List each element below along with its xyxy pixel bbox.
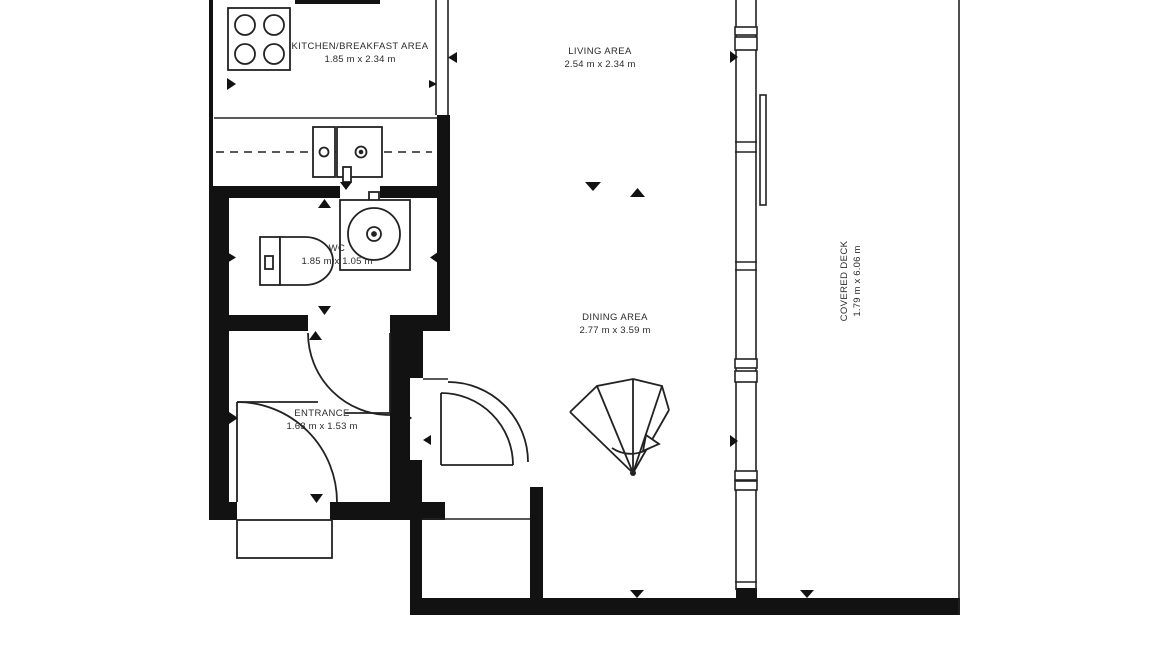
wall-wc-entrance-right	[390, 315, 450, 331]
wc-dimensions: 1.85 m x 1.05 m	[277, 255, 397, 268]
wall-entrance-bottom-left	[209, 502, 237, 520]
wc-fixtures	[260, 192, 410, 285]
stove-burner-icon	[235, 44, 255, 64]
vestibule-door-swing-arc-outer	[448, 382, 528, 462]
wall-wc-top-right	[380, 186, 450, 198]
floor-plan: KITCHEN/BREAKFAST AREA 1.85 m x 2.34 m L…	[0, 0, 1170, 648]
stair-tread-line	[597, 386, 633, 473]
living-area-name: LIVING AREA	[520, 45, 680, 58]
window-mullion	[735, 481, 757, 490]
wall-wc-entrance-left	[209, 315, 308, 331]
living-area-dimensions: 2.54 m x 2.34 m	[520, 58, 680, 71]
wall-porch-right	[530, 487, 543, 615]
marker-down-icon	[340, 182, 352, 190]
wall-bottom-main	[410, 598, 960, 615]
marker-up-icon	[318, 199, 331, 208]
kitchen-tap-icon	[343, 167, 351, 182]
dining-area-label: DINING AREA 2.77 m x 3.59 m	[535, 311, 695, 337]
stair-tread-line	[570, 412, 633, 473]
hall-door-swing-arc	[308, 333, 390, 415]
wc-name: WC	[277, 242, 397, 255]
sink-drain-dot	[360, 151, 363, 154]
stair-direction-arrowhead	[643, 435, 659, 451]
marker-down-icon	[800, 590, 814, 598]
window-mullion	[735, 37, 757, 50]
stove-burner-icon	[264, 15, 284, 35]
sink-drain-icon	[320, 148, 329, 157]
marker-up-icon	[309, 331, 322, 340]
doors	[237, 333, 528, 558]
stove-burner-icon	[235, 15, 255, 35]
covered-deck-label: COVERED DECK 1.79 m x 6.06 m	[838, 226, 864, 336]
window-mullion	[735, 471, 757, 480]
marker-right-icon	[227, 252, 236, 263]
marker-down-icon	[630, 590, 644, 598]
stair-center-post	[630, 470, 636, 476]
covered-deck-dimensions: 1.79 m x 6.06 m	[851, 226, 864, 336]
dining-area-name: DINING AREA	[535, 311, 695, 324]
basin-drain-dot	[372, 232, 376, 236]
marker-down-icon	[318, 306, 331, 315]
marker-left-icon	[423, 435, 431, 445]
window-mullion	[735, 371, 757, 382]
sliding-door-panel	[760, 95, 766, 205]
marker-down-icon	[585, 182, 601, 191]
living-area-label: LIVING AREA 2.54 m x 2.34 m	[520, 45, 680, 71]
wall-entrance-right	[390, 378, 410, 502]
kitchen-name: KITCHEN/BREAKFAST AREA	[280, 40, 440, 53]
kitchen-fixtures	[228, 8, 382, 182]
marker-left-icon	[430, 252, 438, 263]
wall-window-base-block	[736, 588, 757, 598]
kitchen-dimensions: 1.85 m x 2.34 m	[280, 53, 440, 66]
entrance-step	[237, 520, 332, 558]
window-wall	[735, 0, 766, 590]
marker-down-icon	[310, 494, 323, 503]
wall-wc-top-left	[209, 186, 340, 198]
wall-entrance-corner	[390, 331, 423, 378]
marker-up-icon	[630, 188, 645, 197]
wall-entrance-bottom-right	[330, 502, 445, 520]
wall-vestibule-left	[410, 460, 422, 615]
window-mullion	[735, 359, 757, 368]
entrance-name: ENTRANCE	[242, 407, 402, 420]
wall-left-thick	[209, 186, 229, 520]
entrance-dimensions: 1.63 m x 1.53 m	[242, 420, 402, 433]
marker-left-icon	[448, 52, 457, 63]
covered-deck-name: COVERED DECK	[838, 226, 851, 336]
window-mullion	[735, 27, 757, 35]
marker-right-icon	[227, 78, 236, 90]
wall-main-vertical	[437, 115, 450, 331]
winder-staircase-icon	[570, 379, 669, 476]
dining-area-dimensions: 2.77 m x 3.59 m	[535, 324, 695, 337]
entrance-label: ENTRANCE 1.63 m x 1.53 m	[242, 407, 402, 433]
kitchen-label: KITCHEN/BREAKFAST AREA 1.85 m x 2.34 m	[280, 40, 440, 66]
toilet-button-icon	[265, 256, 273, 269]
wc-label: WC 1.85 m x 1.05 m	[277, 242, 397, 268]
wall-top-segment	[295, 0, 380, 4]
wall-left-thin	[209, 0, 213, 188]
